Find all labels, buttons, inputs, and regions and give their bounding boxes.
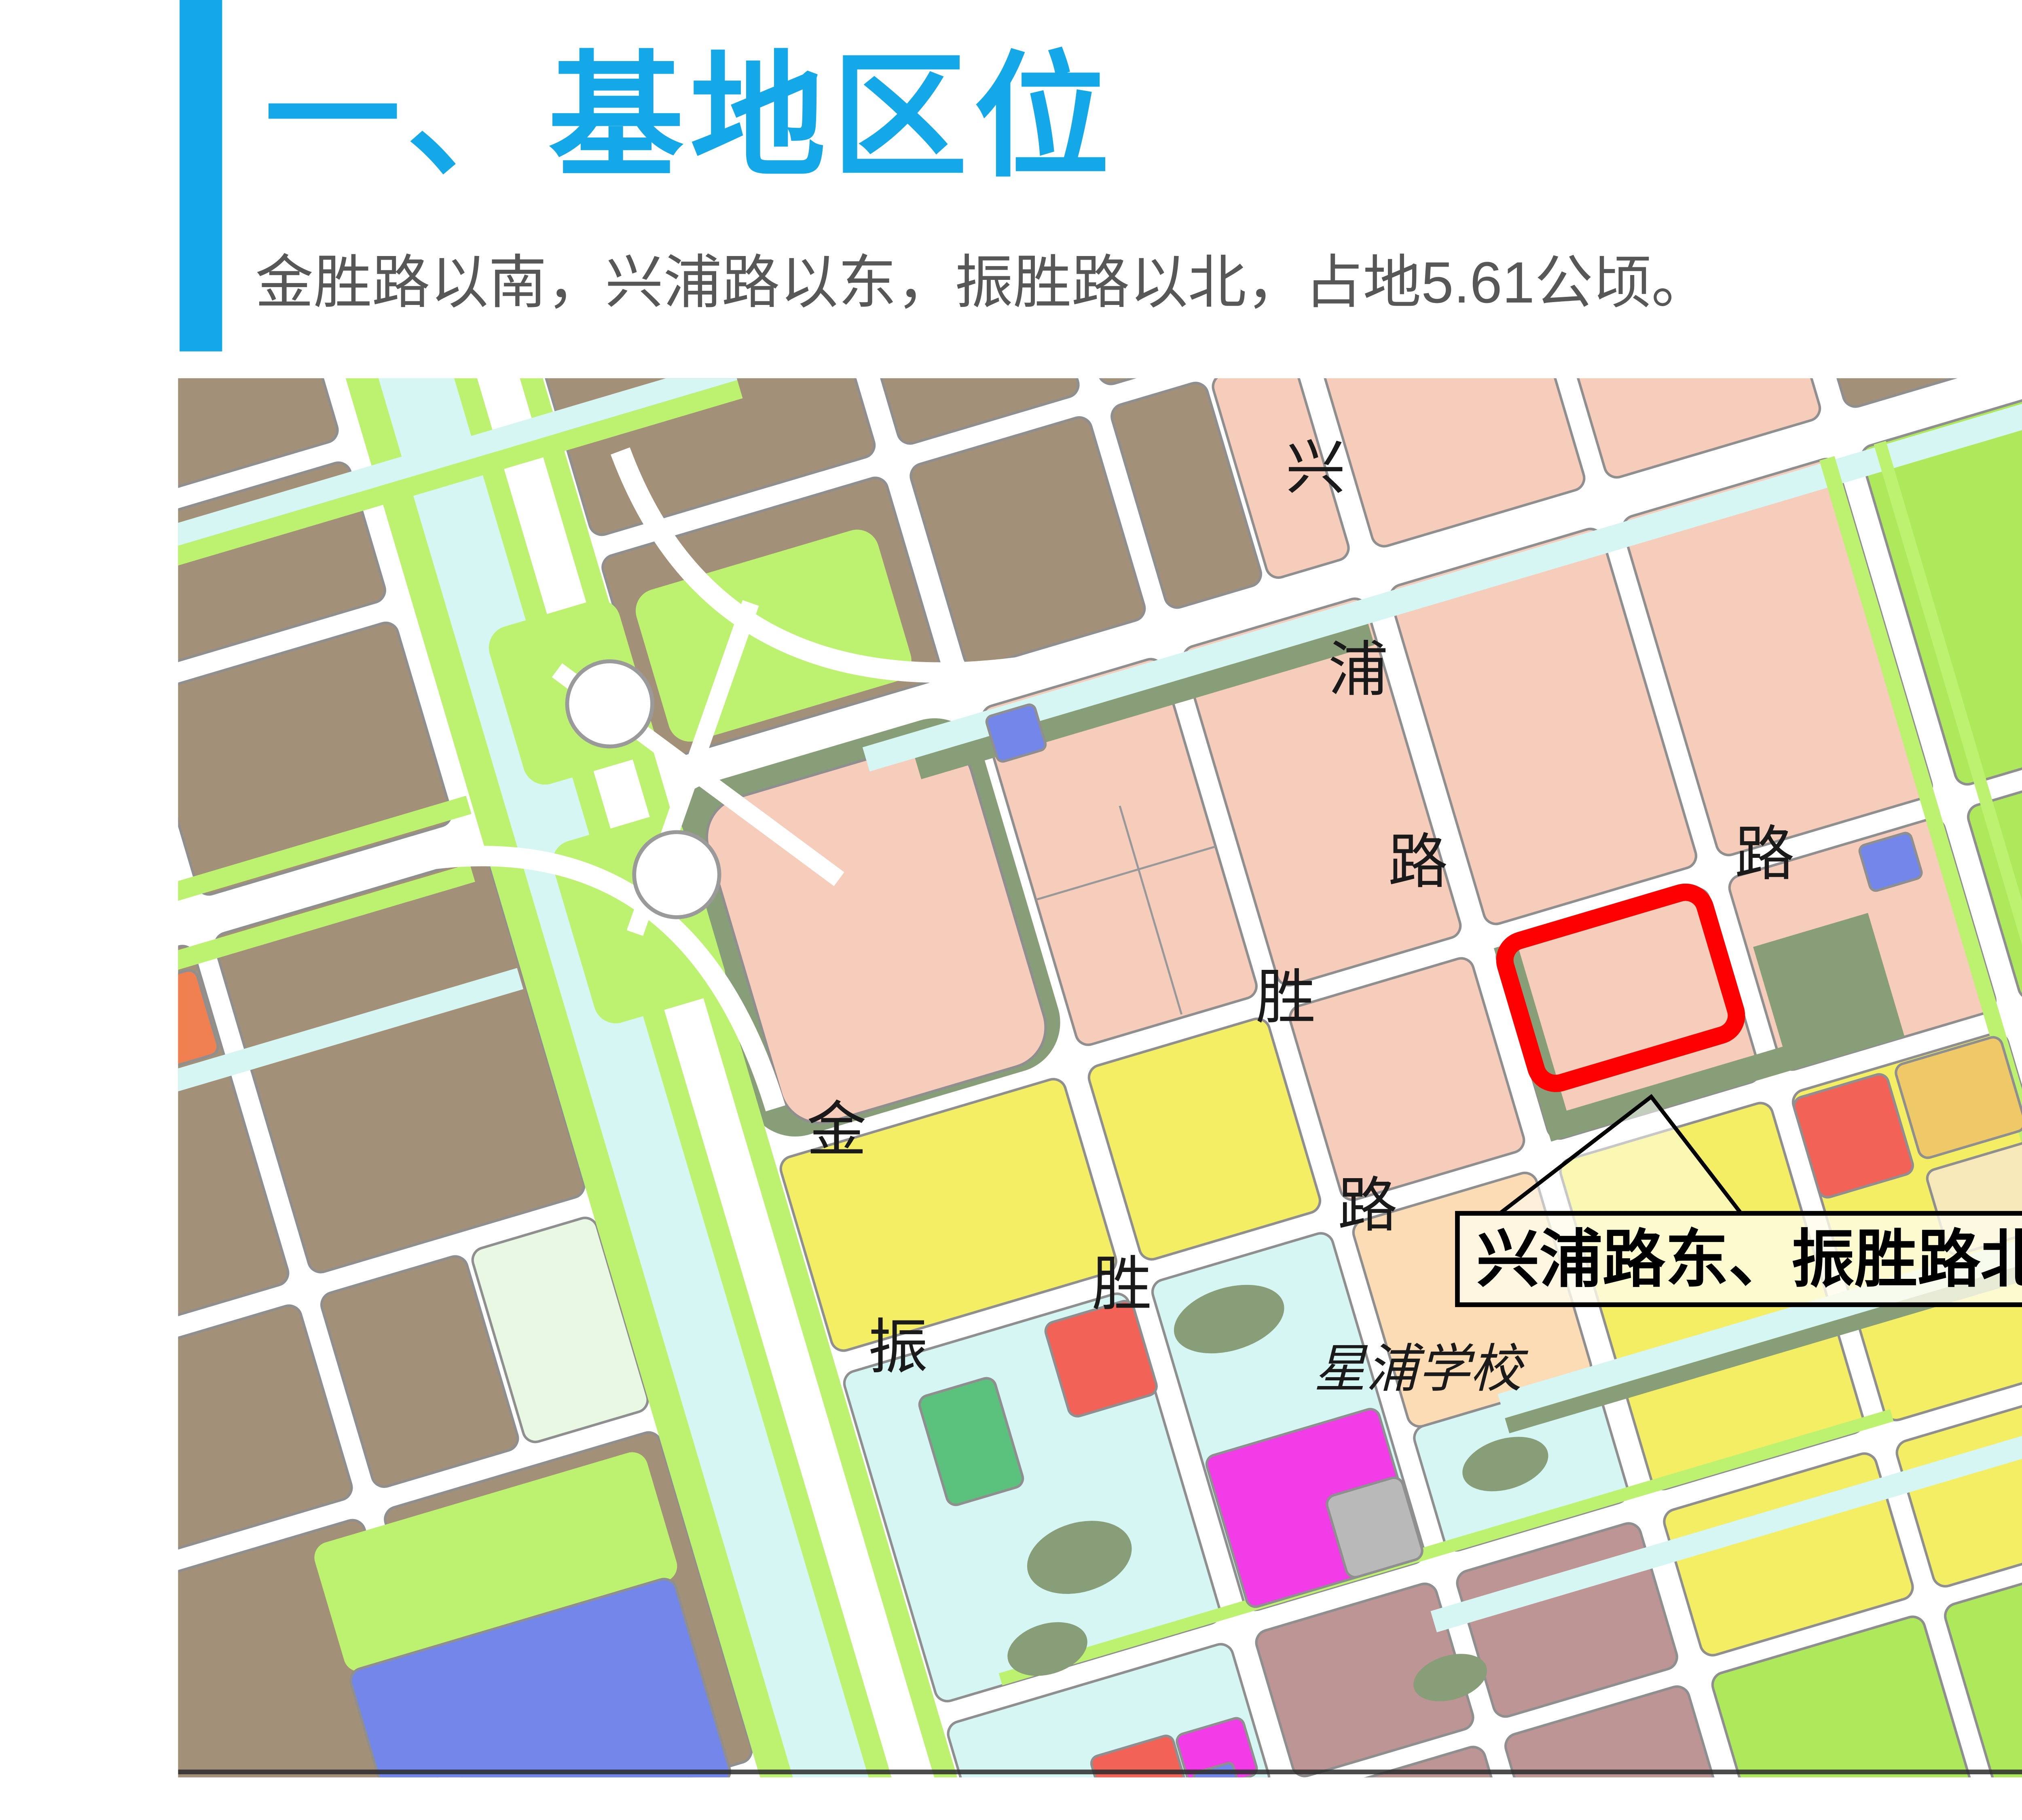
map-grid bbox=[178, 378, 2022, 1778]
road-label-zhensheng-char-0: 振 bbox=[868, 1312, 928, 1382]
map-bottom-edge bbox=[178, 1769, 2022, 1774]
road-label-zhensheng-char-1: 胜 bbox=[1092, 1249, 1152, 1319]
title-accent-bar bbox=[180, 0, 222, 351]
page-subtitle: 金胜路以南，兴浦路以东，振胜路以北，占地5.61公顷。 bbox=[255, 249, 1709, 319]
school-label: 星浦学校 bbox=[1314, 1339, 1529, 1399]
road-label-xingpu-char-1: 浦 bbox=[1328, 635, 1388, 704]
map-svg: 兴 浦 路 金 胜 路 振 胜 路 星浦学校 兴浦路东、振胜路北地块 bbox=[178, 378, 2022, 1778]
road-label-jinsheng-char-2: 路 bbox=[1735, 819, 1795, 889]
road-label-jinsheng-char-0: 金 bbox=[807, 1095, 867, 1164]
slide-page: 一、基地区位 金胜路以南，兴浦路以东，振胜路以北，占地5.61公顷。 bbox=[0, 0, 2022, 1820]
slide-stage: 一、基地区位 金胜路以南，兴浦路以东，振胜路以北，占地5.61公顷。 bbox=[0, 0, 2022, 1820]
road-label-jinsheng-char-1: 胜 bbox=[1256, 963, 1316, 1032]
page-title: 一、基地区位 bbox=[265, 44, 1116, 193]
road-label-zhensheng-char-2: 路 bbox=[1338, 1170, 1398, 1240]
road-label-xingpu-char-0: 兴 bbox=[1286, 433, 1345, 503]
planning-map: 兴 浦 路 金 胜 路 振 胜 路 星浦学校 兴浦路东、振胜路北地块 bbox=[178, 378, 2022, 1778]
road-label-xingpu-char-2: 路 bbox=[1388, 827, 1448, 897]
callout-label: 兴浦路东、振胜路北地块 bbox=[1476, 1223, 2022, 1296]
